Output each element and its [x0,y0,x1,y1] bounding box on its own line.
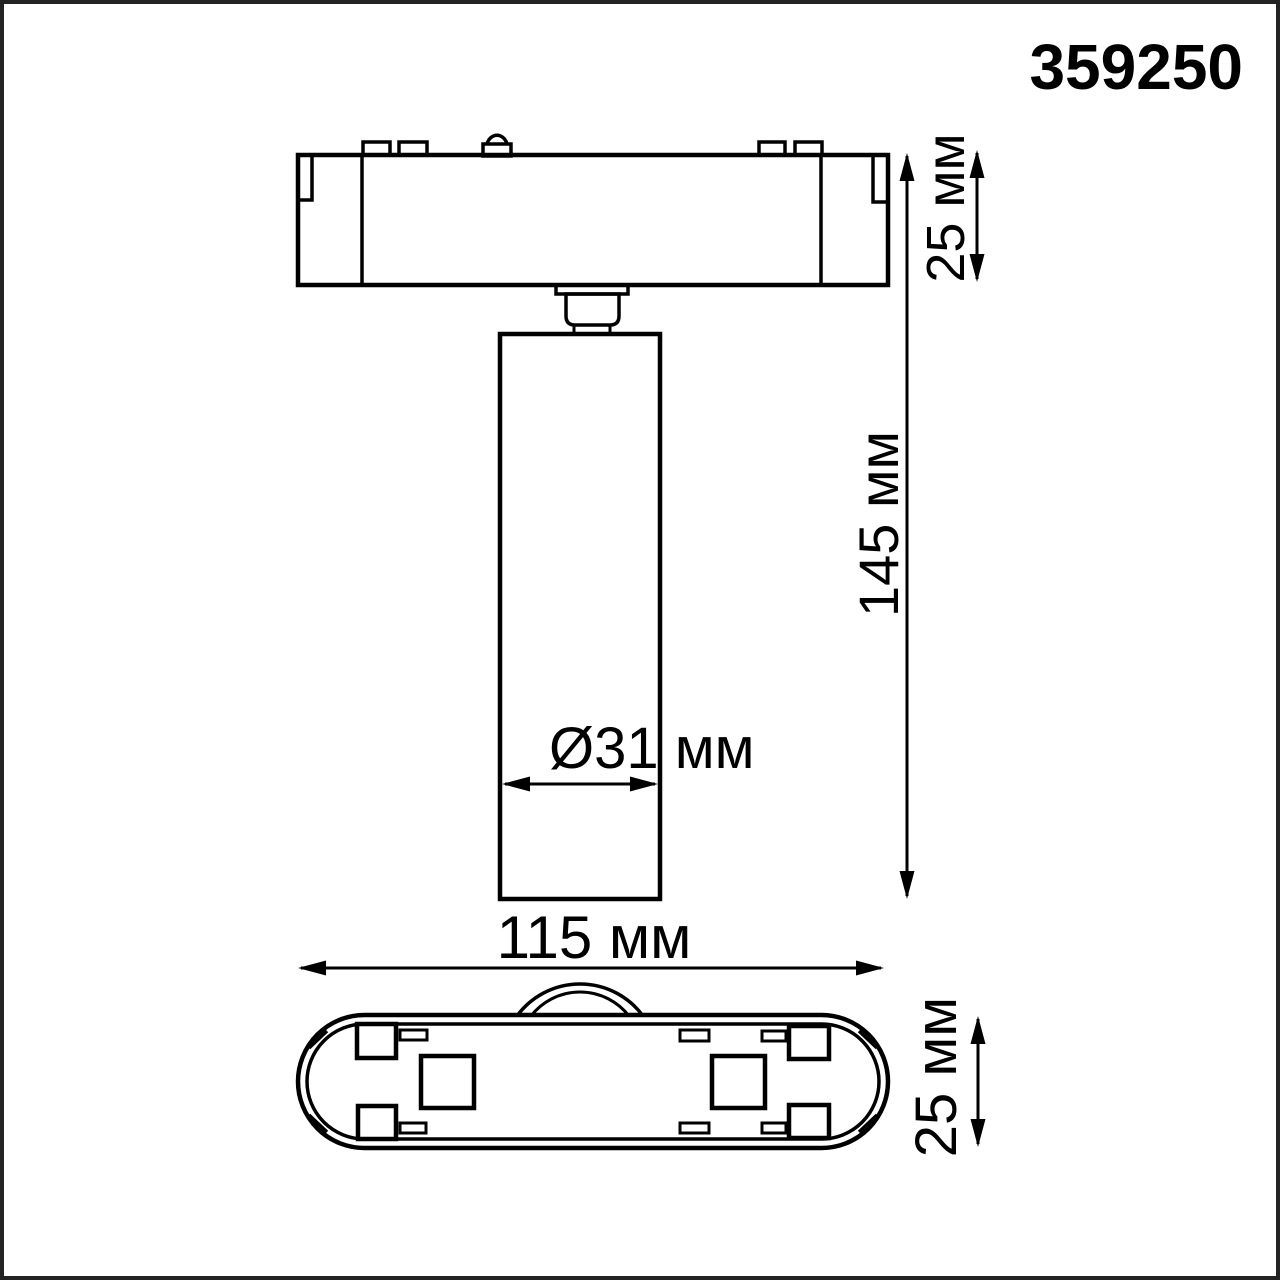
arrowhead-right [856,961,884,976]
contact-slot [680,1030,709,1041]
pill-outer-outline [298,1015,888,1148]
track-base-outline [298,155,888,285]
magnet-pad-left [421,1056,474,1108]
article-number: 359250 [1029,31,1243,103]
spot-cylinder [500,334,660,899]
dimension-base-depth: 25 мм [904,997,986,1157]
contact-slot [762,1123,786,1133]
arrowhead-down [971,1119,986,1147]
technical-drawing-svg: 25 мм 145 мм Ø31 мм 115 мм [4,4,1276,1276]
dim-label-base-depth: 25 мм [904,997,969,1157]
arrowhead-down [900,871,915,899]
dim-label-track-base-height: 25 мм [916,133,976,282]
base-right-notch [873,157,886,202]
contact-slot [400,1030,427,1040]
arrowhead-up [971,1016,986,1044]
corner-pad [789,1105,829,1138]
bottom-view [298,984,888,1148]
base-left-notch [300,157,312,200]
dim-label-overall-height: 145 мм [847,431,910,617]
dimension-overall-height: 145 мм [847,153,915,899]
dim-label-diameter: Ø31 мм [549,716,755,781]
corner-pad [357,1024,396,1058]
dimension-track-base-height: 25 мм [916,133,985,282]
contact-slot [400,1123,426,1133]
arrowhead-left [502,777,530,792]
arrowhead-left [298,961,326,976]
joint-block [566,294,619,325]
dimension-base-width: 115 мм [298,904,884,976]
contact-slot [680,1123,709,1133]
arrowhead-up [900,153,915,181]
corner-pad [789,1026,829,1059]
corner-pad [358,1106,396,1139]
dim-label-base-width: 115 мм [497,904,692,971]
handle-arc-inner [531,992,629,1016]
pill-inner-outline [307,1024,879,1139]
dimension-diameter: Ø31 мм [502,716,755,792]
contact-slot [762,1031,786,1041]
magnet-pad-right [712,1056,765,1108]
drawing-canvas: 25 мм 145 мм Ø31 мм 115 мм [0,0,1280,1280]
